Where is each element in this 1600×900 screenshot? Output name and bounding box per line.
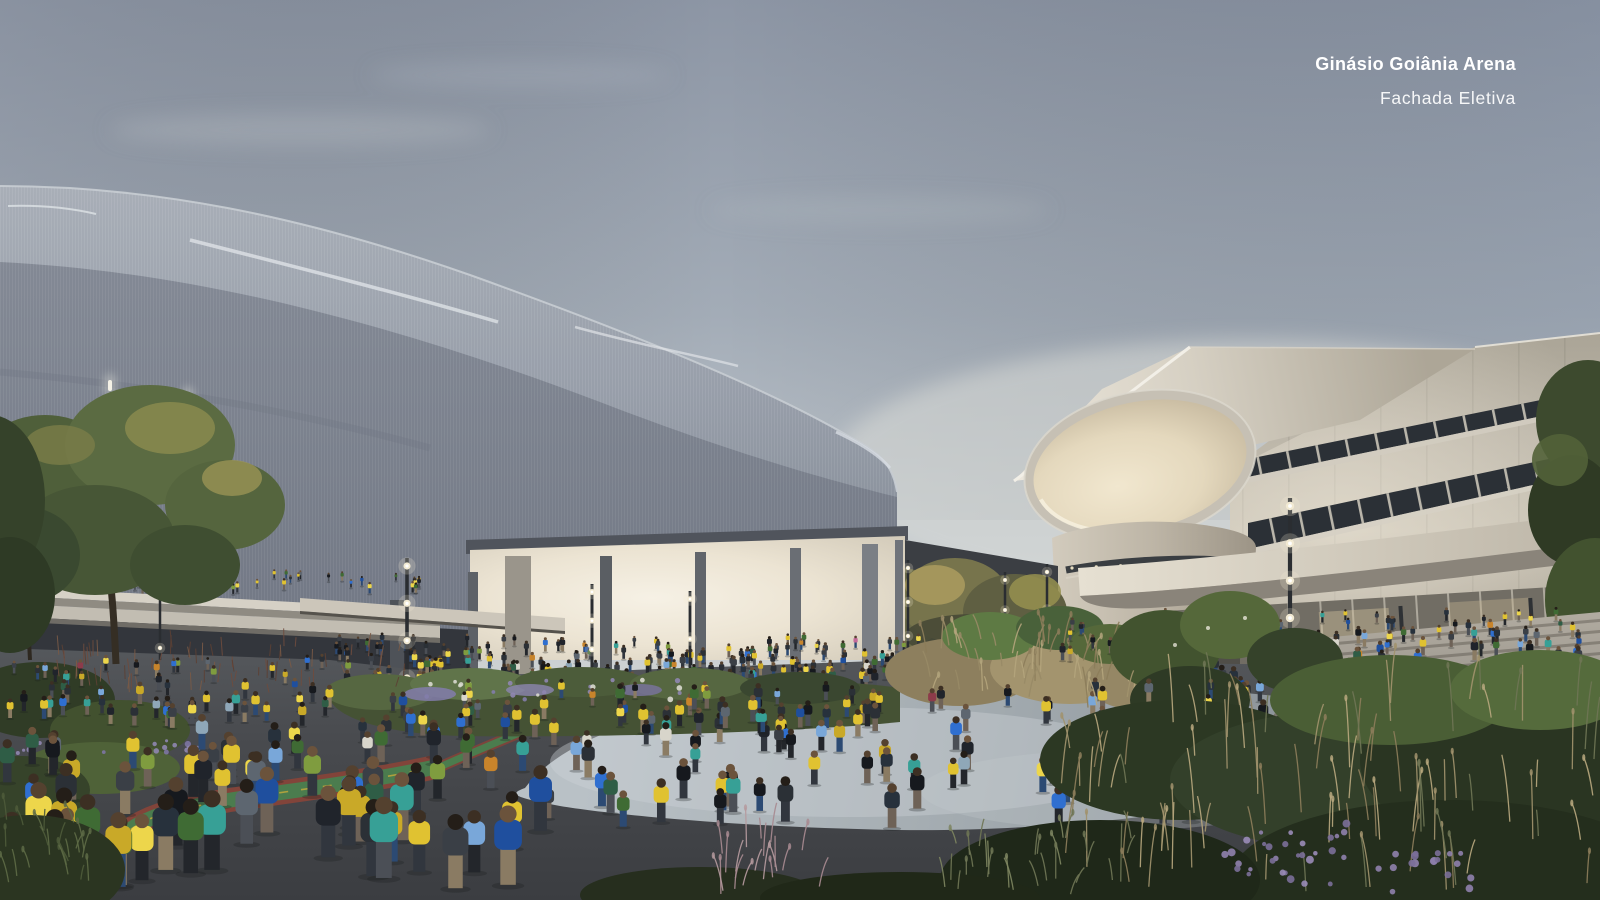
caption-subtitle: Fachada Eletiva — [1315, 88, 1516, 109]
architectural-rendering: Ginásio Goiânia Arena Fachada Eletiva — [0, 0, 1600, 900]
caption-title: Ginásio Goiânia Arena — [1315, 54, 1516, 75]
caption: Ginásio Goiânia Arena Fachada Eletiva — [1315, 54, 1516, 109]
scene-canvas — [0, 0, 1600, 900]
purple-flower-patch — [404, 687, 456, 701]
